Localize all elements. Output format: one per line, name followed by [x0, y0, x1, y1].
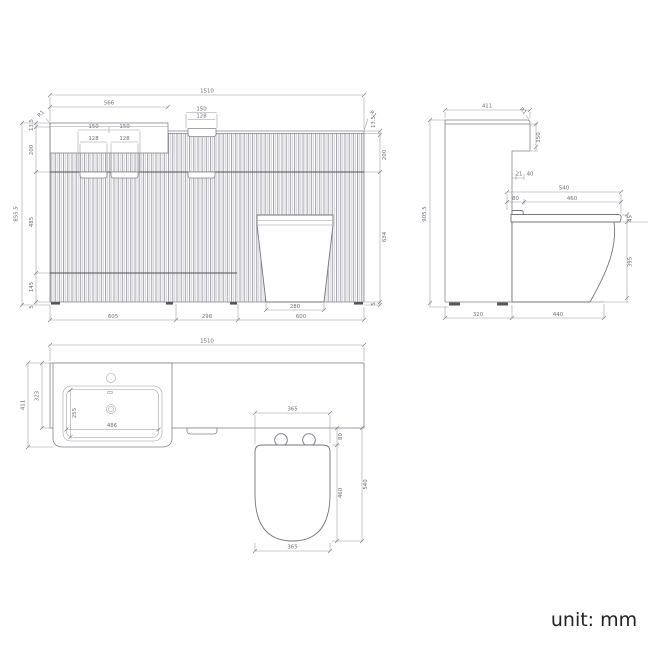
front-basin-width-label: 566 [104, 101, 115, 107]
front-bottom-toilet-label: 600 [296, 314, 307, 320]
front-foot-3 [230, 302, 237, 305]
front-edge-left-label: 13.5 [29, 119, 35, 131]
front-edge-right-label: 13.5 [371, 116, 377, 128]
front-top-handle-recess [188, 129, 216, 137]
front-right-lower-label: 634 [382, 231, 388, 242]
front-top-handle-outer-label: 150 [196, 107, 207, 113]
drawing-sheet: 1510 566 150 128 150 150 128 128 R1 R1 1… [0, 0, 650, 650]
front-total-height-label: 855.5 [14, 206, 20, 221]
front-left-handle-recess-2 [111, 172, 138, 178]
front-foot-4 [354, 302, 363, 305]
front-handle1-inner-label: 128 [88, 136, 99, 142]
side-total-height-label: 905.5 [422, 206, 428, 221]
side-top-depth-label: 411 [482, 104, 492, 110]
plan-view: 411 323 486 255 365 365 80 460 540 [21, 361, 370, 553]
side-foot-2 [497, 303, 508, 306]
front-total-width-label: 1510 [200, 89, 214, 95]
front-upper-right-label: 200 [382, 149, 388, 160]
side-seat-length-label: 460 [567, 196, 578, 202]
side-cabinet-depth-label: 320 [473, 312, 484, 318]
front-foot-2 [166, 302, 173, 305]
side-seat-back-label: 80 [512, 196, 519, 202]
side-elevation-view: 411 R1 150 905.5 21 40 540 80 460 45 395… [422, 104, 648, 321]
front-handle1-outer-label: 150 [88, 124, 99, 130]
front-plinth-left-label: 5 [29, 305, 35, 308]
side-foot-1 [449, 303, 460, 306]
plan-counter-depth-label: 323 [35, 391, 41, 401]
plan-basin-depth-label: 255 [72, 408, 78, 418]
plan-seat-hinge-right [303, 434, 316, 447]
front-bottom-total-label: 1510 [200, 339, 214, 345]
plan-basin-width-label: 486 [107, 423, 118, 429]
side-toilet-projection-label: 440 [553, 312, 564, 318]
front-handle2-inner-label: 128 [119, 136, 130, 142]
plan-seat-length-label: 460 [338, 487, 344, 498]
front-plinth-right-label: 5 [371, 302, 377, 305]
front-mid-left-label: 485 [29, 217, 35, 227]
side-counter-drop-label: 150 [536, 132, 542, 143]
plan-left-depth-label: 411 [21, 400, 27, 410]
plan-toilet-seat-outline [255, 445, 330, 541]
front-bottom-vanity-label: 605 [108, 314, 118, 320]
front-mid-handle-recess [188, 172, 215, 178]
plan-handle-recess [187, 428, 217, 434]
front-toilet-base-label: 280 [290, 304, 301, 310]
front-toilet-outline [257, 215, 333, 302]
unit-label: unit: mm [551, 609, 637, 631]
side-seat-total-label: 540 [559, 186, 570, 192]
plan-seat-hinge-left [275, 434, 288, 447]
front-lower-left-label: 145 [29, 282, 35, 292]
plan-seat-total-label: 540 [363, 479, 369, 490]
front-handle2-outer-label: 150 [119, 124, 130, 130]
front-left-handle-recess-1 [80, 172, 107, 178]
front-upper-left-label: 200 [29, 144, 35, 155]
front-top-handle-inner-label: 128 [196, 114, 207, 120]
plan-seat-back-label: 80 [338, 433, 344, 440]
side-gap-large-label: 40 [527, 172, 534, 178]
side-gap-small-label: 21 [516, 172, 523, 178]
side-seat-thickness-label: 45 [628, 215, 634, 222]
side-seat-hinge [512, 211, 523, 215]
side-bowl-height-label: 395 [628, 257, 634, 267]
front-elevation-view: 1510 566 150 128 150 150 128 128 R1 R1 1… [14, 89, 389, 362]
front-bottom-mid-label: 298 [202, 314, 213, 320]
side-toilet-bowl-outline [512, 222, 615, 302]
plan-seat-width-top-label: 365 [287, 407, 297, 413]
plan-seat-width-bottom-label: 365 [287, 545, 297, 551]
front-foot-1 [51, 302, 60, 305]
side-radius-label: R1 [518, 107, 527, 116]
side-seat-outline [511, 215, 621, 223]
technical-drawing: 1510 566 150 128 150 150 128 128 R1 R1 1… [0, 0, 650, 650]
front-radius-left-label: R1 [37, 110, 46, 119]
